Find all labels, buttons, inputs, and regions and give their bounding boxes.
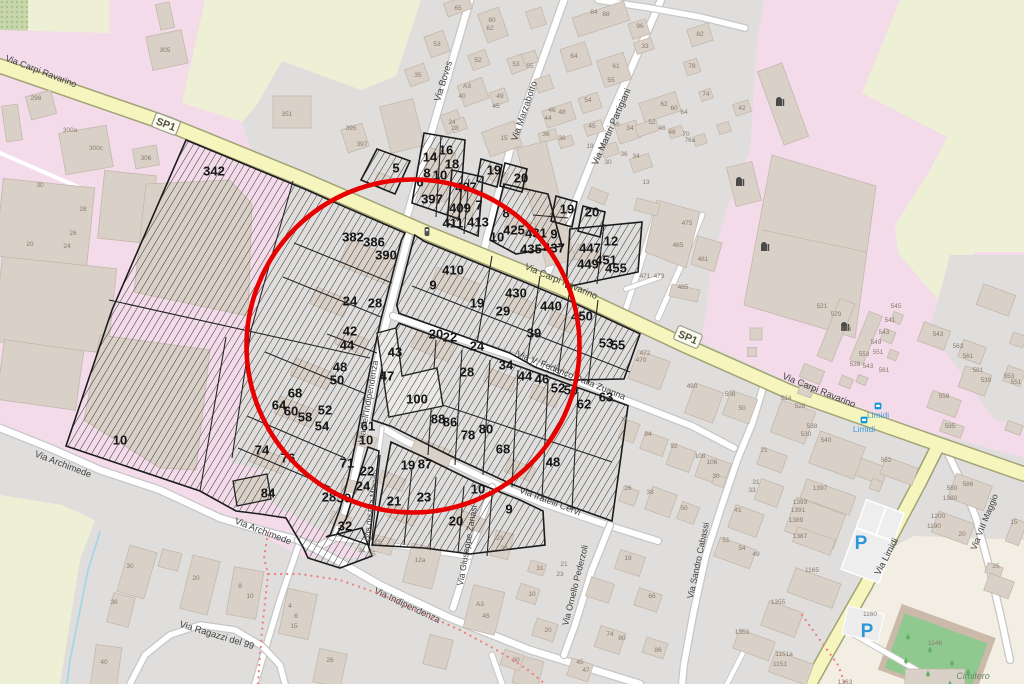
svg-text:10: 10 [471,482,485,497]
svg-text:298: 298 [31,95,42,102]
svg-text:1397: 1397 [813,485,828,492]
svg-text:19: 19 [586,143,594,150]
svg-text:19: 19 [624,555,632,562]
svg-text:30: 30 [604,159,612,166]
svg-text:48: 48 [558,109,566,116]
svg-text:562: 562 [881,457,892,464]
svg-text:34: 34 [499,358,514,373]
svg-text:6: 6 [294,613,298,620]
svg-text:16: 16 [439,143,453,158]
svg-text:25: 25 [992,563,1000,570]
svg-text:528: 528 [795,403,806,410]
svg-text:82: 82 [696,31,704,38]
svg-text:60: 60 [670,105,678,112]
svg-text:551: 551 [873,349,884,356]
svg-text:1151a: 1151a [775,651,793,658]
svg-text:68: 68 [288,386,302,401]
svg-text:20: 20 [514,171,528,186]
svg-text:20: 20 [364,535,372,542]
svg-text:485: 485 [678,284,689,291]
svg-text:28: 28 [460,365,474,380]
svg-text:54: 54 [738,545,746,552]
svg-text:16: 16 [612,121,620,128]
svg-text:60: 60 [488,17,496,24]
svg-text:4: 4 [288,603,292,610]
svg-text:92: 92 [670,443,678,450]
svg-text:12: 12 [604,234,618,249]
svg-text:580: 580 [947,485,958,492]
svg-text:539: 539 [850,361,861,368]
svg-text:543: 543 [879,329,890,336]
svg-text:540: 540 [821,437,832,444]
svg-text:5: 5 [392,161,399,176]
svg-text:23: 23 [556,571,564,578]
svg-text:49: 49 [496,93,504,100]
svg-text:25: 25 [374,539,382,546]
svg-text:38: 38 [558,135,566,142]
svg-text:45: 45 [492,103,500,110]
svg-text:306: 306 [141,155,152,162]
svg-text:74: 74 [606,631,614,638]
svg-text:10: 10 [113,433,127,448]
svg-text:36: 36 [542,131,550,138]
svg-text:84: 84 [644,431,652,438]
svg-text:12a: 12a [415,557,426,564]
svg-text:46: 46 [548,107,556,114]
svg-text:71: 71 [340,456,354,471]
svg-text:76a: 76a [685,137,696,144]
svg-text:84: 84 [261,486,276,501]
svg-text:35: 35 [414,72,422,79]
svg-text:28: 28 [451,125,459,132]
svg-text:61: 61 [612,63,620,70]
svg-text:1160: 1160 [863,611,877,618]
svg-text:66: 66 [648,593,656,600]
svg-text:529: 529 [831,311,842,318]
svg-text:50: 50 [738,405,746,412]
svg-text:87: 87 [418,457,432,472]
svg-text:1353: 1353 [735,629,750,636]
svg-text:541: 541 [885,317,896,324]
svg-text:22: 22 [443,330,457,345]
svg-text:561: 561 [963,353,974,360]
svg-text:45: 45 [588,123,596,130]
svg-text:32: 32 [338,519,352,534]
svg-text:455: 455 [605,261,627,276]
svg-text:300c: 300c [89,145,104,152]
svg-text:1363: 1363 [838,679,853,684]
svg-text:54: 54 [315,419,330,434]
svg-text:20: 20 [26,241,34,248]
svg-text:88: 88 [602,11,610,18]
svg-text:53: 53 [512,61,520,68]
svg-text:19: 19 [401,458,415,473]
svg-text:84: 84 [590,9,598,16]
svg-text:58: 58 [298,410,312,425]
svg-text:26: 26 [69,230,77,237]
svg-text:1151: 1151 [773,661,787,668]
svg-text:45: 45 [482,613,490,620]
svg-text:553: 553 [859,351,870,358]
svg-text:397: 397 [357,141,368,148]
svg-text:54: 54 [584,97,592,104]
svg-text:34: 34 [626,125,634,132]
svg-text:65: 65 [454,5,462,12]
svg-text:33: 33 [748,487,756,494]
svg-text:31: 31 [358,547,366,554]
svg-text:45: 45 [576,659,584,666]
svg-text:30: 30 [126,563,134,570]
svg-text:78: 78 [688,63,696,70]
svg-text:41: 41 [734,507,742,514]
svg-text:23: 23 [417,490,431,505]
svg-text:44: 44 [544,115,552,122]
svg-text:440: 440 [540,299,562,314]
svg-text:55: 55 [607,77,615,84]
svg-text:51: 51 [722,537,730,544]
svg-text:411: 411 [443,216,464,231]
svg-text:390: 390 [375,248,397,263]
svg-text:471: 471 [640,273,651,280]
svg-text:1165: 1165 [805,567,819,574]
svg-text:Cimitero: Cimitero [956,671,990,681]
svg-text:559: 559 [939,393,950,400]
svg-text:425: 425 [503,223,525,238]
svg-text:60: 60 [284,404,298,419]
svg-text:1190: 1190 [927,523,941,530]
svg-text:43: 43 [388,345,402,360]
svg-text:305: 305 [160,47,171,54]
svg-text:19: 19 [470,296,484,311]
svg-text:80: 80 [618,635,626,642]
svg-text:62: 62 [660,101,668,108]
svg-text:35: 35 [368,551,376,558]
svg-text:18: 18 [445,157,459,172]
svg-text:382: 382 [342,230,364,245]
svg-text:30: 30 [712,473,720,480]
svg-text:34: 34 [632,153,640,160]
svg-text:472: 472 [640,350,651,357]
svg-text:52: 52 [648,119,656,126]
svg-text:20: 20 [585,205,599,220]
svg-text:15: 15 [1010,519,1018,526]
svg-text:1355: 1355 [771,599,786,606]
svg-text:68: 68 [496,442,510,457]
svg-text:521: 521 [817,303,828,310]
svg-text:7: 7 [475,198,482,213]
svg-text:409: 409 [449,201,471,216]
svg-text:1391: 1391 [791,507,806,514]
svg-text:13: 13 [642,179,650,186]
svg-text:1380: 1380 [943,495,958,502]
svg-text:1200: 1200 [931,513,946,520]
svg-text:581: 581 [973,367,984,374]
svg-text:26: 26 [624,485,632,492]
svg-text:50: 50 [330,373,344,388]
svg-text:30: 30 [512,657,520,664]
svg-text:52: 52 [474,57,482,64]
svg-text:473: 473 [654,273,665,280]
svg-text:36: 36 [620,151,628,158]
svg-text:48: 48 [546,455,560,470]
svg-text:A3: A3 [476,601,484,608]
svg-text:20: 20 [958,531,966,538]
svg-text:62: 62 [486,25,494,32]
svg-text:300a: 300a [63,127,78,134]
svg-text:55: 55 [611,338,625,353]
svg-text:31: 31 [752,479,760,486]
svg-text:40: 40 [100,659,108,666]
svg-text:545: 545 [891,303,902,310]
svg-text:538: 538 [807,423,818,430]
svg-text:106: 106 [707,459,718,466]
svg-text:563: 563 [953,343,964,350]
svg-text:74: 74 [620,417,628,424]
svg-text:395: 395 [346,125,357,132]
svg-text:410: 410 [442,263,464,278]
svg-text:96: 96 [636,23,644,30]
svg-text:53: 53 [433,41,441,48]
svg-text:15: 15 [290,623,298,630]
svg-text:108: 108 [695,453,706,460]
svg-text:430: 430 [505,286,527,301]
svg-text:435: 435 [520,242,542,257]
svg-text:543: 543 [863,363,874,370]
svg-text:P: P [855,533,868,554]
svg-text:A3: A3 [463,83,471,90]
svg-text:33: 33 [641,43,649,50]
svg-text:551: 551 [1011,379,1022,386]
svg-text:24: 24 [63,243,71,250]
svg-text:543: 543 [933,331,944,338]
svg-text:80: 80 [479,422,493,437]
svg-text:26: 26 [326,657,334,664]
svg-text:49: 49 [752,551,760,558]
svg-text:64: 64 [680,109,688,116]
svg-text:64: 64 [570,53,578,60]
svg-text:50: 50 [680,505,688,512]
svg-text:24: 24 [470,339,485,354]
svg-text:P: P [861,621,874,642]
svg-text:15: 15 [500,135,508,142]
svg-text:Limidi: Limidi [867,410,889,420]
svg-text:21: 21 [496,535,504,542]
svg-text:20: 20 [449,514,463,529]
svg-text:561: 561 [879,367,890,374]
svg-text:475: 475 [682,220,693,227]
svg-text:21: 21 [387,494,401,509]
svg-text:397: 397 [421,192,443,207]
svg-text:413: 413 [467,215,489,230]
svg-text:47: 47 [380,369,394,384]
svg-text:46: 46 [658,125,666,132]
svg-text:Limidi: Limidi [853,424,875,434]
svg-text:47: 47 [582,667,590,674]
svg-text:23: 23 [500,545,508,552]
svg-text:9: 9 [429,278,436,293]
svg-text:55: 55 [526,63,534,70]
svg-text:100: 100 [406,392,428,407]
svg-text:21: 21 [760,447,768,454]
svg-text:19: 19 [487,163,501,178]
svg-text:20: 20 [544,627,552,634]
svg-text:508: 508 [725,391,736,398]
svg-text:14: 14 [423,150,438,165]
svg-text:533: 533 [841,326,852,333]
svg-text:30: 30 [36,182,44,189]
svg-text:470: 470 [636,357,647,364]
svg-text:549: 549 [871,339,882,346]
svg-text:24: 24 [343,294,358,309]
svg-text:29: 29 [496,304,510,319]
svg-text:44: 44 [340,338,355,353]
svg-text:595: 595 [945,423,956,430]
svg-text:481: 481 [698,256,709,263]
svg-text:44: 44 [518,369,533,384]
svg-text:465: 465 [673,242,684,249]
svg-text:52: 52 [318,403,332,418]
svg-text:38: 38 [110,599,118,606]
svg-text:28: 28 [79,206,87,213]
svg-text:10: 10 [246,593,254,600]
svg-text:86: 86 [443,415,457,430]
svg-text:86: 86 [654,647,662,654]
svg-text:342: 342 [203,164,225,179]
svg-text:9: 9 [505,502,512,517]
svg-text:28: 28 [368,296,382,311]
svg-text:1146: 1146 [928,640,942,647]
svg-text:534: 534 [781,395,792,402]
svg-text:10: 10 [490,230,504,245]
svg-text:31: 31 [536,565,544,572]
svg-text:20: 20 [429,327,443,342]
svg-text:1389: 1389 [789,517,804,524]
svg-text:351: 351 [282,111,293,118]
svg-text:530: 530 [801,431,812,438]
svg-text:20: 20 [192,575,200,582]
svg-text:48: 48 [668,129,676,136]
svg-text:74: 74 [255,443,270,458]
svg-text:40: 40 [458,93,466,100]
svg-text:539: 539 [981,377,992,384]
svg-text:586: 586 [963,481,974,488]
svg-text:78: 78 [461,428,475,443]
svg-text:9: 9 [550,227,557,242]
svg-text:1387: 1387 [793,533,808,540]
svg-text:21: 21 [560,561,568,568]
svg-text:46: 46 [535,372,549,387]
svg-text:490: 490 [687,383,698,390]
svg-text:42: 42 [343,324,357,339]
svg-text:42: 42 [738,105,746,112]
svg-text:74: 74 [702,91,710,98]
svg-text:39: 39 [527,326,541,341]
svg-text:1393: 1393 [793,499,808,506]
svg-text:19: 19 [560,202,574,217]
svg-text:8: 8 [238,583,242,590]
svg-text:38: 38 [646,489,654,496]
svg-text:62: 62 [577,397,591,412]
svg-text:10: 10 [528,591,536,598]
